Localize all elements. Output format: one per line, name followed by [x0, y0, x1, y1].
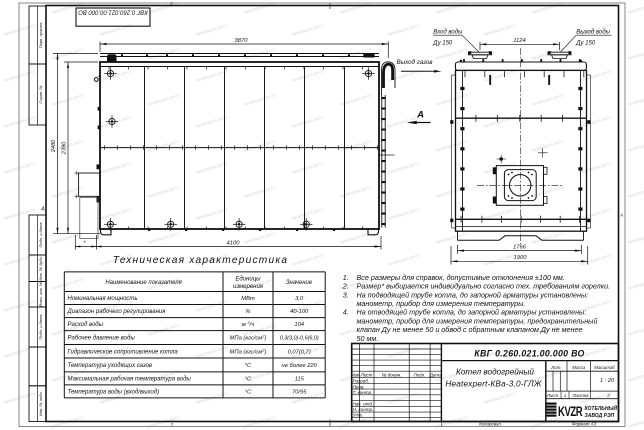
svg-text:Лист: Лист	[546, 393, 559, 398]
svg-text:МПа (кгс/см2): МПа (кгс/см2)	[230, 347, 267, 355]
svg-text:0,3(3,0)-0,6(6,0): 0,3(3,0)-0,6(6,0)	[280, 336, 319, 342]
svg-text:°С: °С	[245, 390, 252, 396]
svg-text:измерения: измерения	[233, 284, 264, 290]
svg-text:не более 220: не более 220	[282, 363, 318, 369]
svg-text:Рабочее давление воды: Рабочее давление воды	[68, 336, 136, 342]
svg-text:%: %	[245, 309, 250, 315]
svg-text:Инв. № подл.: Инв. № подл.	[38, 391, 43, 416]
svg-text:Инв. № дубл.: Инв. № дубл.	[38, 256, 43, 281]
svg-text:2390: 2390	[62, 141, 68, 155]
svg-text:3870: 3870	[235, 38, 249, 44]
svg-text:Выход воды: Выход воды	[576, 30, 610, 36]
svg-text:Вход воды: Вход воды	[433, 30, 463, 36]
svg-text:КОТЕЛЬНЫЙ: КОТЕЛЬНЫЙ	[585, 404, 618, 412]
svg-text:КВГ 0.260.021.00.000 ВО: КВГ 0.260.021.00.000 ВО	[474, 348, 584, 358]
svg-text:А: А	[416, 109, 424, 120]
svg-text:115: 115	[295, 377, 305, 383]
svg-text:Лит.: Лит.	[550, 365, 561, 370]
svg-text:На подводящей трубе котла, до: На подводящей трубе котла, до запорной а…	[357, 290, 589, 299]
svg-text:На отводящей трубе котла, до з: На отводящей трубе котла, до запорной ар…	[357, 308, 587, 317]
svg-text:Единицы: Единицы	[235, 277, 261, 283]
svg-text:4100: 4100	[227, 241, 241, 247]
svg-text:Дата: Дата	[429, 373, 442, 378]
svg-text:104: 104	[294, 322, 304, 328]
svg-text:Масштаб: Масштаб	[594, 365, 615, 370]
svg-text:3,0: 3,0	[295, 296, 304, 302]
svg-text:Копировал: Копировал	[479, 421, 501, 426]
svg-text:Все размеры для справок, допус: Все размеры для справок, допустимые откл…	[357, 273, 565, 282]
svg-text:Взам. инв. №: Взам. инв. №	[38, 281, 43, 306]
svg-text:Утв.: Утв.	[353, 413, 363, 418]
svg-text:Т. контр.: Т. контр.	[353, 390, 373, 395]
svg-text:клапан Ду не менее 50 и обвод: клапан Ду не менее 50 и обвод с обратным…	[357, 325, 583, 334]
svg-text:А: А	[619, 213, 623, 218]
svg-text:Выход газов: Выход газов	[396, 59, 433, 66]
svg-text:Ду 150: Ду 150	[432, 41, 453, 47]
svg-text:0,07(0,7): 0,07(0,7)	[288, 349, 311, 355]
svg-text:Номинальная мощность: Номинальная мощность	[68, 296, 138, 302]
svg-text:Перв. примен.: Перв. примен.	[38, 22, 43, 49]
svg-text:Максимальная рабочая температу: Максимальная рабочая температура воды	[68, 377, 192, 383]
svg-text:3.: 3.	[343, 290, 349, 299]
svg-text:Температура уходящих газов: Температура уходящих газов	[68, 363, 153, 369]
svg-text:МПа (кгс/см2): МПа (кгс/см2)	[230, 334, 267, 342]
svg-text:70/95: 70/95	[292, 390, 307, 396]
svg-text:Масса: Масса	[572, 365, 586, 370]
svg-text:Размер* выбирается индивидуаль: Размер* выбирается индивидуально согласн…	[357, 282, 611, 291]
svg-text:Нач. отд.: Нач. отд.	[353, 401, 374, 406]
svg-text:№ докум.: № докум.	[382, 373, 402, 378]
svg-text:Подп. и дата: Подп. и дата	[38, 222, 43, 248]
svg-text:1 : 20: 1 : 20	[600, 378, 615, 384]
svg-text:Н. контр.: Н. контр.	[353, 407, 374, 412]
svg-text:1124: 1124	[513, 38, 525, 44]
svg-text:Температура воды (вход/выход): Температура воды (вход/выход)	[68, 390, 160, 396]
svg-text:°С: °С	[245, 377, 252, 383]
svg-text:Разраб.: Разраб.	[353, 379, 370, 384]
svg-text:50 мм.: 50 мм.	[357, 334, 379, 343]
svg-text:Гидравлическое сопротивление к: Гидравлическое сопротивление котла	[68, 349, 179, 355]
svg-text:Формат А3: Формат А3	[572, 421, 597, 426]
svg-text:1900: 1900	[514, 255, 528, 261]
svg-text:2.: 2.	[342, 282, 349, 291]
svg-text:2480: 2480	[51, 139, 57, 153]
svg-text:Техническая характеристика: Техническая характеристика	[113, 255, 288, 266]
svg-text:Heatexpert-КВа-3,0-ГЛЖ: Heatexpert-КВа-3,0-ГЛЖ	[445, 380, 541, 389]
svg-text:Расход воды: Расход воды	[68, 322, 104, 328]
svg-text:Подп. и дата: Подп. и дата	[38, 314, 43, 340]
svg-text:КВГ 0.260.021.00.000 ВО: КВГ 0.260.021.00.000 ВО	[78, 9, 148, 15]
svg-text:4.: 4.	[343, 308, 349, 317]
svg-text:40-100: 40-100	[290, 309, 309, 315]
svg-text:Справ. №: Справ. №	[38, 85, 43, 104]
svg-text:Наименование показателя: Наименование показателя	[105, 280, 182, 286]
svg-text:1.: 1.	[343, 273, 349, 282]
svg-text:ЗАВОД РЭП: ЗАВОД РЭП	[585, 413, 615, 419]
svg-text:А: А	[40, 207, 45, 213]
svg-text:Изм: Изм	[351, 373, 359, 378]
svg-text:Лист: Лист	[360, 373, 373, 378]
svg-text:МВт: МВт	[241, 296, 255, 302]
svg-text:Подп.: Подп.	[414, 373, 426, 378]
svg-text:1766: 1766	[513, 244, 527, 250]
svg-text:Диапазон рабочего регулировани: Диапазон рабочего регулирования	[67, 309, 167, 315]
svg-text:Листов: Листов	[572, 393, 590, 398]
svg-text:Ду 150: Ду 150	[575, 41, 596, 47]
svg-text:манометр, прибор для измерения: манометр, прибор для измерения температу…	[357, 299, 526, 308]
svg-text:манометр, прибор для измерения: манометр, прибор для измерения температу…	[357, 316, 598, 325]
svg-text:°С: °С	[245, 363, 252, 369]
svg-text:KVZR: KVZR	[558, 403, 583, 419]
svg-text:Значение: Значение	[286, 280, 313, 286]
svg-text:Пров.: Пров.	[353, 384, 365, 389]
svg-text:2: 2	[606, 393, 610, 398]
svg-text:Котел водогрейный: Котел водогрейный	[456, 367, 534, 376]
